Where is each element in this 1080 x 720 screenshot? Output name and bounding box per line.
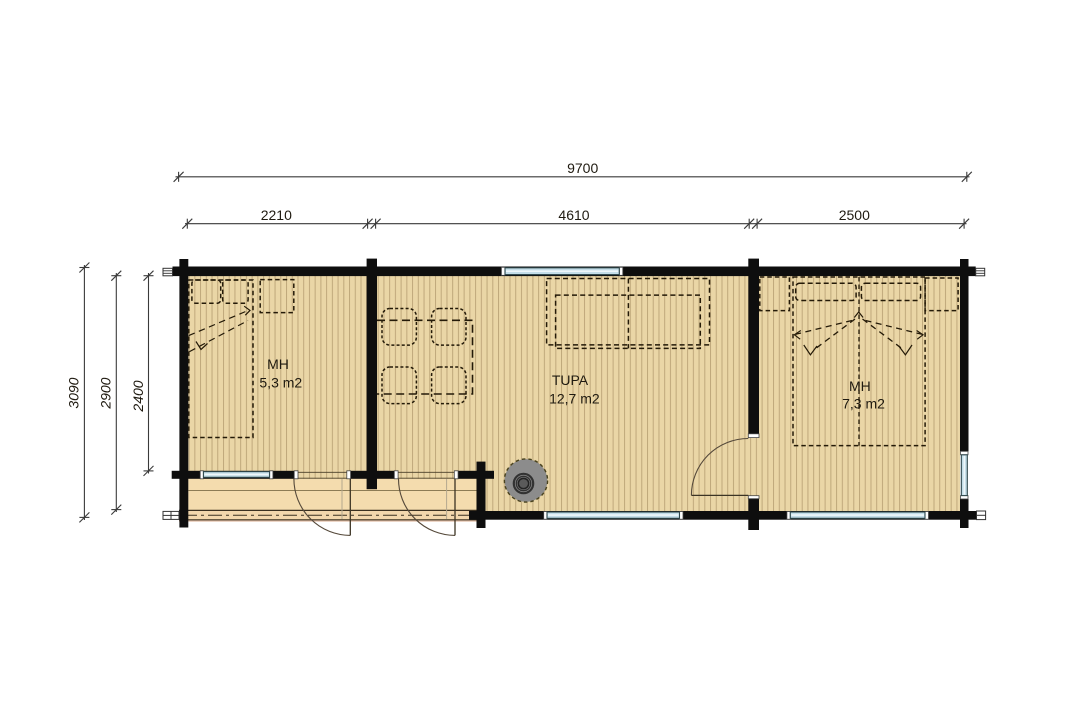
svg-text:5,3 m2: 5,3 m2 bbox=[259, 374, 302, 390]
svg-text:TUPA: TUPA bbox=[552, 372, 589, 388]
svg-text:9700: 9700 bbox=[567, 160, 598, 176]
svg-text:2210: 2210 bbox=[261, 207, 292, 223]
svg-text:12,7 m2: 12,7 m2 bbox=[549, 390, 600, 406]
svg-text:4610: 4610 bbox=[558, 207, 589, 223]
svg-text:MH: MH bbox=[267, 356, 289, 372]
svg-text:2500: 2500 bbox=[839, 207, 870, 223]
svg-text:7,3 m2: 7,3 m2 bbox=[842, 396, 885, 412]
svg-text:3090: 3090 bbox=[66, 377, 82, 408]
svg-text:MH: MH bbox=[849, 378, 871, 394]
svg-text:2900: 2900 bbox=[98, 377, 114, 409]
svg-text:2400: 2400 bbox=[130, 380, 146, 412]
